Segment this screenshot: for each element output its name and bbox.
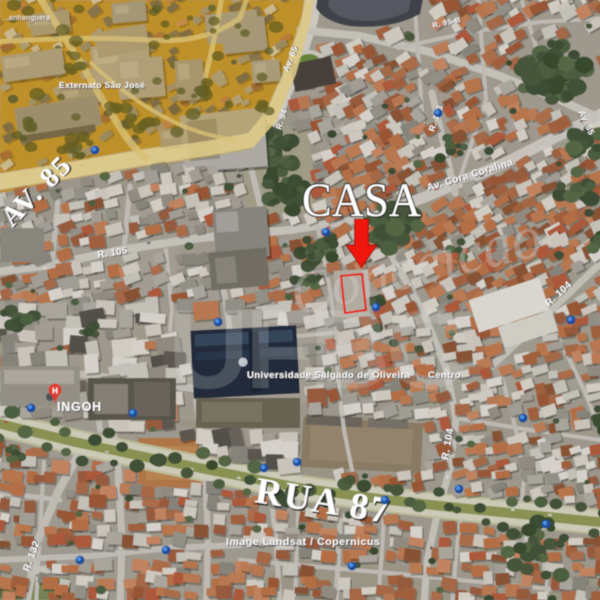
svg-text:Universidade Salgado de Olivei: Universidade Salgado de Oliveira bbox=[247, 370, 411, 381]
svg-text:Image Landsat / Copernicus: Image Landsat / Copernicus bbox=[226, 536, 380, 548]
svg-text:H: H bbox=[52, 386, 58, 395]
svg-text:INGOH: INGOH bbox=[57, 400, 102, 414]
svg-text:...anhanguera: ...anhanguera bbox=[2, 15, 50, 22]
svg-text:Centro: Centro bbox=[428, 370, 461, 381]
svg-text:Externato São José: Externato São José bbox=[59, 80, 145, 90]
